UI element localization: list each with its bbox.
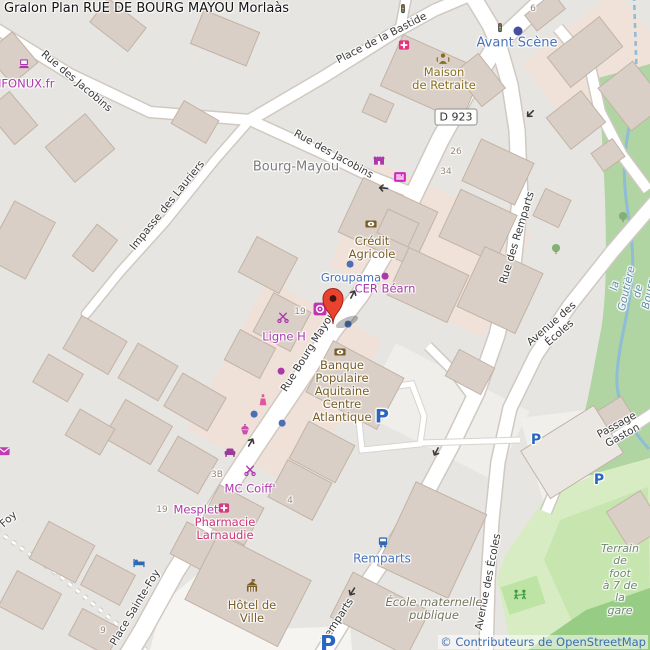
map-base-layers xyxy=(0,0,650,650)
map-title: Gralon Plan RUE DE BOURG MAYOU Morlaàs xyxy=(4,1,289,16)
attribution: © Contributeurs de OpenStreetMap xyxy=(438,635,648,649)
map-canvas[interactable]: Rue des JacobinsImpasse des LauriersPlac… xyxy=(0,0,650,650)
